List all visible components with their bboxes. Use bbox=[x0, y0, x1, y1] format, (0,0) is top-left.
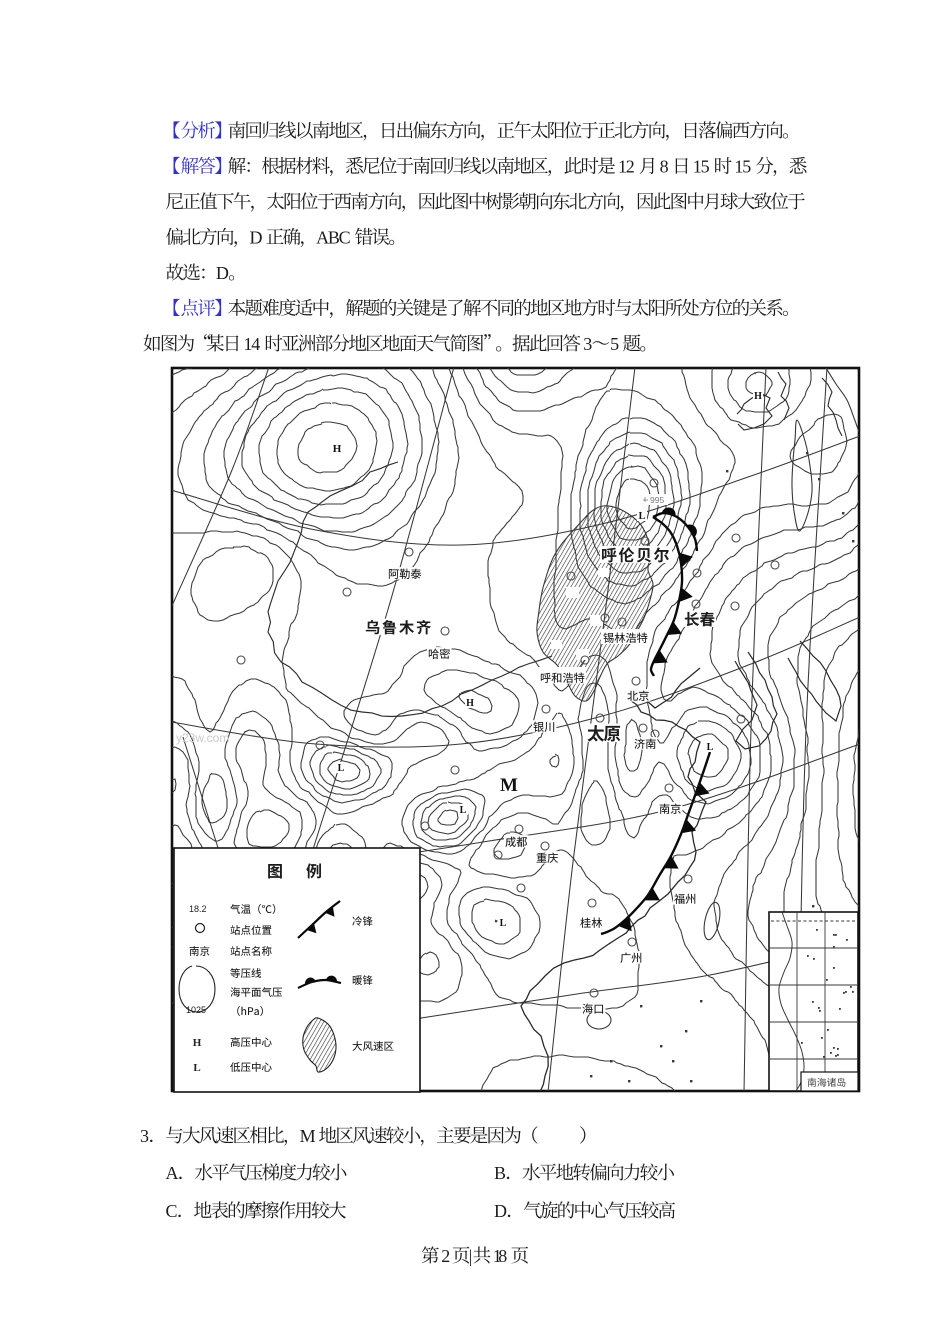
svg-text:H: H bbox=[466, 698, 474, 709]
svg-text:C: C bbox=[166, 1201, 178, 1221]
svg-text:L: L bbox=[639, 511, 646, 522]
svg-text:12: 12 bbox=[618, 157, 635, 177]
svg-text:D: D bbox=[216, 263, 229, 283]
svg-text:ABC: ABC bbox=[316, 228, 351, 248]
svg-text:H: H bbox=[333, 443, 342, 455]
svg-text:L: L bbox=[193, 1062, 200, 1074]
svg-text:A: A bbox=[166, 1163, 179, 1183]
svg-text:15: 15 bbox=[734, 157, 751, 177]
svg-text:M: M bbox=[300, 1126, 316, 1146]
svg-text:B: B bbox=[494, 1163, 506, 1183]
svg-text:L: L bbox=[338, 763, 345, 774]
svg-text:M: M bbox=[500, 775, 518, 796]
svg-text:|: | bbox=[469, 1246, 473, 1266]
svg-text:H: H bbox=[754, 391, 762, 402]
svg-text:L: L bbox=[460, 805, 467, 816]
svg-text:995: 995 bbox=[650, 495, 664, 505]
svg-text:L: L bbox=[500, 918, 507, 929]
svg-text:L: L bbox=[707, 742, 714, 753]
svg-text:18: 18 bbox=[493, 1246, 507, 1266]
svg-text:3: 3 bbox=[140, 1126, 149, 1146]
svg-text:8: 8 bbox=[660, 157, 669, 177]
svg-text:D: D bbox=[494, 1201, 507, 1221]
svg-text:15: 15 bbox=[693, 157, 710, 177]
svg-text:18.2: 18.2 bbox=[189, 904, 207, 914]
svg-text:5: 5 bbox=[610, 334, 619, 354]
svg-text:y23w.com: y23w.com bbox=[176, 731, 229, 745]
svg-text:H: H bbox=[193, 1037, 202, 1049]
svg-text:D: D bbox=[250, 228, 263, 248]
svg-text:1025: 1025 bbox=[186, 1005, 206, 1015]
svg-text:3: 3 bbox=[583, 334, 592, 354]
svg-text:2: 2 bbox=[441, 1246, 450, 1266]
svg-text:14: 14 bbox=[244, 334, 261, 354]
